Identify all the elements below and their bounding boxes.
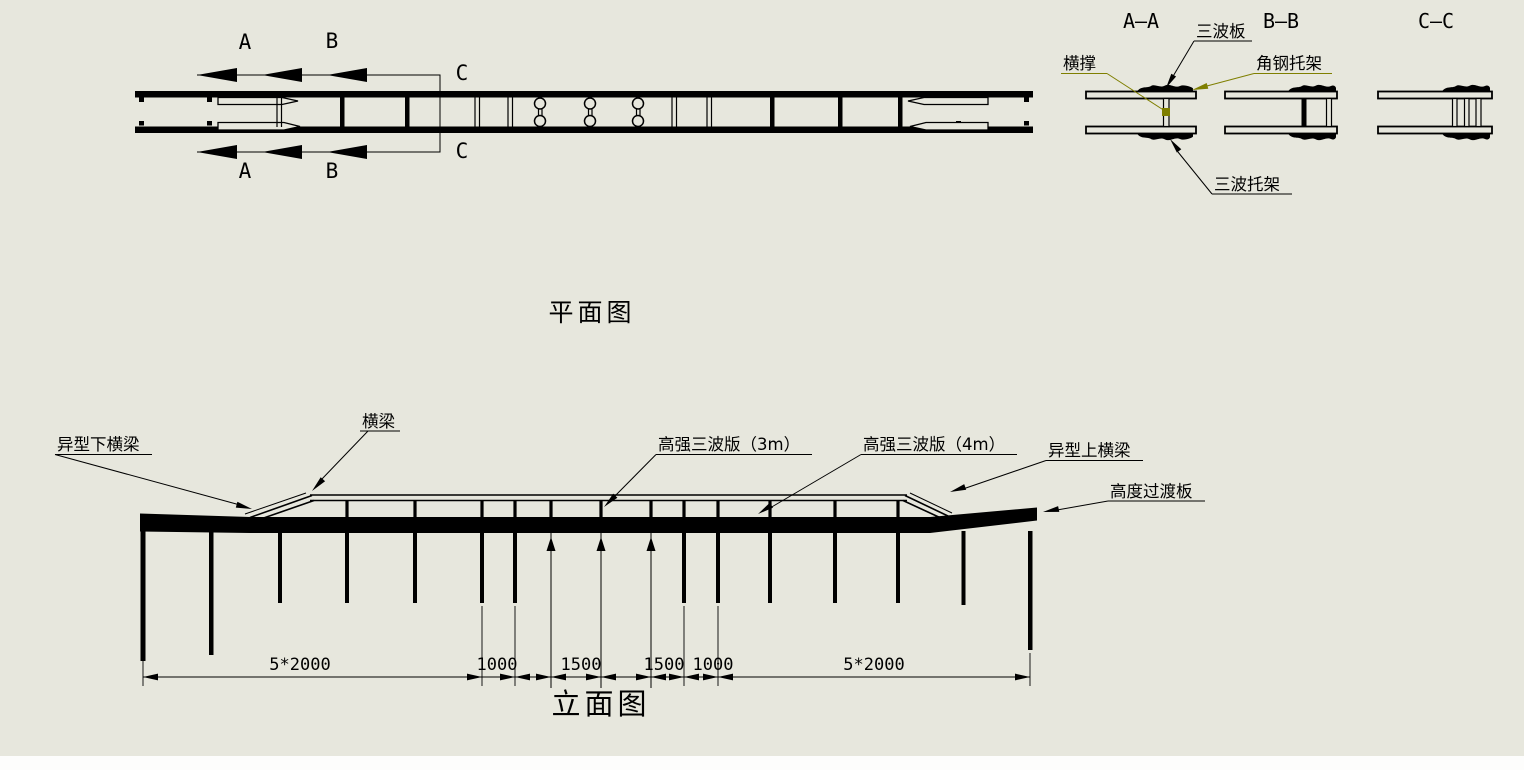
elevation-dimensions: 5*2000 1000 1500 1500 1000 5*2000 xyxy=(143,606,1030,686)
leader-line xyxy=(1172,41,1194,78)
wave-plate-section-bottom xyxy=(1288,134,1336,141)
dim-left-span: 5*2000 xyxy=(269,655,330,675)
cc-web xyxy=(1465,99,1470,127)
section-view-cc: C—C xyxy=(1378,9,1492,140)
elevation-labels: 异型下横梁 横梁 高强三波版（3m） 高强三波版（4m） 异型上横梁 高度过渡板 xyxy=(55,412,1205,514)
plan-thick-rung xyxy=(770,97,775,127)
bottom-strip xyxy=(0,756,1524,770)
marker-b-top: B xyxy=(326,29,339,53)
bb-top-bar xyxy=(1225,92,1337,99)
section-arrow-c-bottom xyxy=(327,145,367,159)
cc-top-bar xyxy=(1378,92,1492,99)
elevation-view-title: 立面图 xyxy=(551,687,650,721)
section-arrow-b-bottom xyxy=(262,145,302,159)
plan-thick-rung xyxy=(898,97,903,127)
plan-left-top-slot xyxy=(218,98,298,105)
section-bb-title: B—B xyxy=(1263,9,1299,33)
drawing-svg: A B A B C C 平面图 A—A 三波板 横撑 角钢托架 三波托架 xyxy=(0,0,1524,770)
label-sanbo-tuojia: 三波托架 xyxy=(1214,175,1280,194)
label-hengcheng: 横撑 xyxy=(1063,54,1096,73)
leader-line xyxy=(1205,74,1254,87)
cc-web xyxy=(1453,99,1458,127)
plan-view-title: 平面图 xyxy=(548,298,635,327)
elevation-view: 异型下横梁 横梁 高强三波版（3m） 高强三波版（4m） 异型上横梁 高度过渡板 xyxy=(55,412,1205,721)
dim-1500-left: 1500 xyxy=(561,655,602,675)
label-sanbo-ban: 三波板 xyxy=(1196,22,1246,41)
label-jiaogang-tuojia: 角钢托架 xyxy=(1256,54,1322,73)
plan-circle-rungs xyxy=(535,98,644,127)
section-arrow-a-bottom xyxy=(197,145,237,159)
label-upper-beam: 异型上横梁 xyxy=(1048,441,1131,460)
bb-web xyxy=(1327,99,1332,127)
section-arrow-c-top xyxy=(327,68,367,82)
section-arrow-a-top xyxy=(197,68,237,82)
marker-a-bottom: A xyxy=(239,159,252,183)
marker-c-bottom: C xyxy=(456,139,469,163)
elevation-main-beam xyxy=(140,508,1037,534)
label-transition-plate: 高度过渡板 xyxy=(1110,482,1193,501)
bb-bottom-bar xyxy=(1225,127,1337,134)
aa-bottom-bar xyxy=(1086,127,1196,134)
rail-connectors xyxy=(345,501,899,518)
plan-top-rail xyxy=(135,91,1033,98)
label-lower-beam: 异型下横梁 xyxy=(57,435,140,454)
plan-view: A B A B C C 平面图 xyxy=(135,29,1033,327)
section-cc-title: C—C xyxy=(1418,9,1454,33)
leader-arrow xyxy=(1170,139,1181,153)
plan-left-bottom-slot xyxy=(218,123,300,131)
wave-plate-section-top xyxy=(1442,85,1490,92)
plan-bolt-tick xyxy=(1024,98,1029,103)
plan-right-top-slot xyxy=(908,98,988,105)
label-plate-4m: 高强三波版（4m） xyxy=(863,435,1005,454)
section-arrow-b-top xyxy=(262,68,302,82)
dim-1000-left: 1000 xyxy=(477,655,518,675)
wave-plate-section-top xyxy=(1137,85,1193,92)
wave-plate-section-top xyxy=(1288,85,1336,92)
plan-bolt-tick xyxy=(139,98,144,103)
bb-post-section xyxy=(1302,99,1307,127)
plan-bolt-tick xyxy=(207,121,212,126)
leader-arrow xyxy=(1192,83,1208,90)
plan-bolt-tick xyxy=(139,121,144,126)
label-beam: 横梁 xyxy=(362,412,395,431)
plan-thick-rung xyxy=(405,97,410,127)
dim-right-span: 5*2000 xyxy=(843,655,904,675)
wave-plate-section-bottom xyxy=(1137,134,1193,141)
plan-thick-rung xyxy=(838,97,843,127)
wave-plate-section-bottom xyxy=(1442,134,1490,141)
cc-web xyxy=(1476,99,1481,127)
plan-bolt-tick xyxy=(1024,121,1029,126)
plan-bolt-tick xyxy=(207,98,212,103)
elevation-posts xyxy=(141,531,1033,661)
marker-a-top: A xyxy=(239,30,252,54)
dim-1500-right: 1500 xyxy=(644,655,685,675)
cad-drawing-canvas: A B A B C C 平面图 A—A 三波板 横撑 角钢托架 三波托架 xyxy=(0,0,1524,770)
leader-line xyxy=(1178,152,1212,194)
elevation-rail xyxy=(245,493,952,521)
section-view-aa: A—A 三波板 横撑 角钢托架 三波托架 xyxy=(1061,9,1332,194)
section-aa-title: A—A xyxy=(1123,9,1159,33)
section-cut-box xyxy=(197,75,440,152)
marker-c-top: C xyxy=(456,61,469,85)
cc-bottom-bar xyxy=(1378,127,1492,134)
hengcheng-marker xyxy=(1162,108,1170,116)
dim-1000-right: 1000 xyxy=(693,655,734,675)
label-plate-3m: 高强三波版（3m） xyxy=(658,435,800,454)
plan-thick-rung xyxy=(340,97,345,127)
plan-right-bottom-slot xyxy=(910,123,988,131)
marker-b-bottom: B xyxy=(326,159,339,183)
